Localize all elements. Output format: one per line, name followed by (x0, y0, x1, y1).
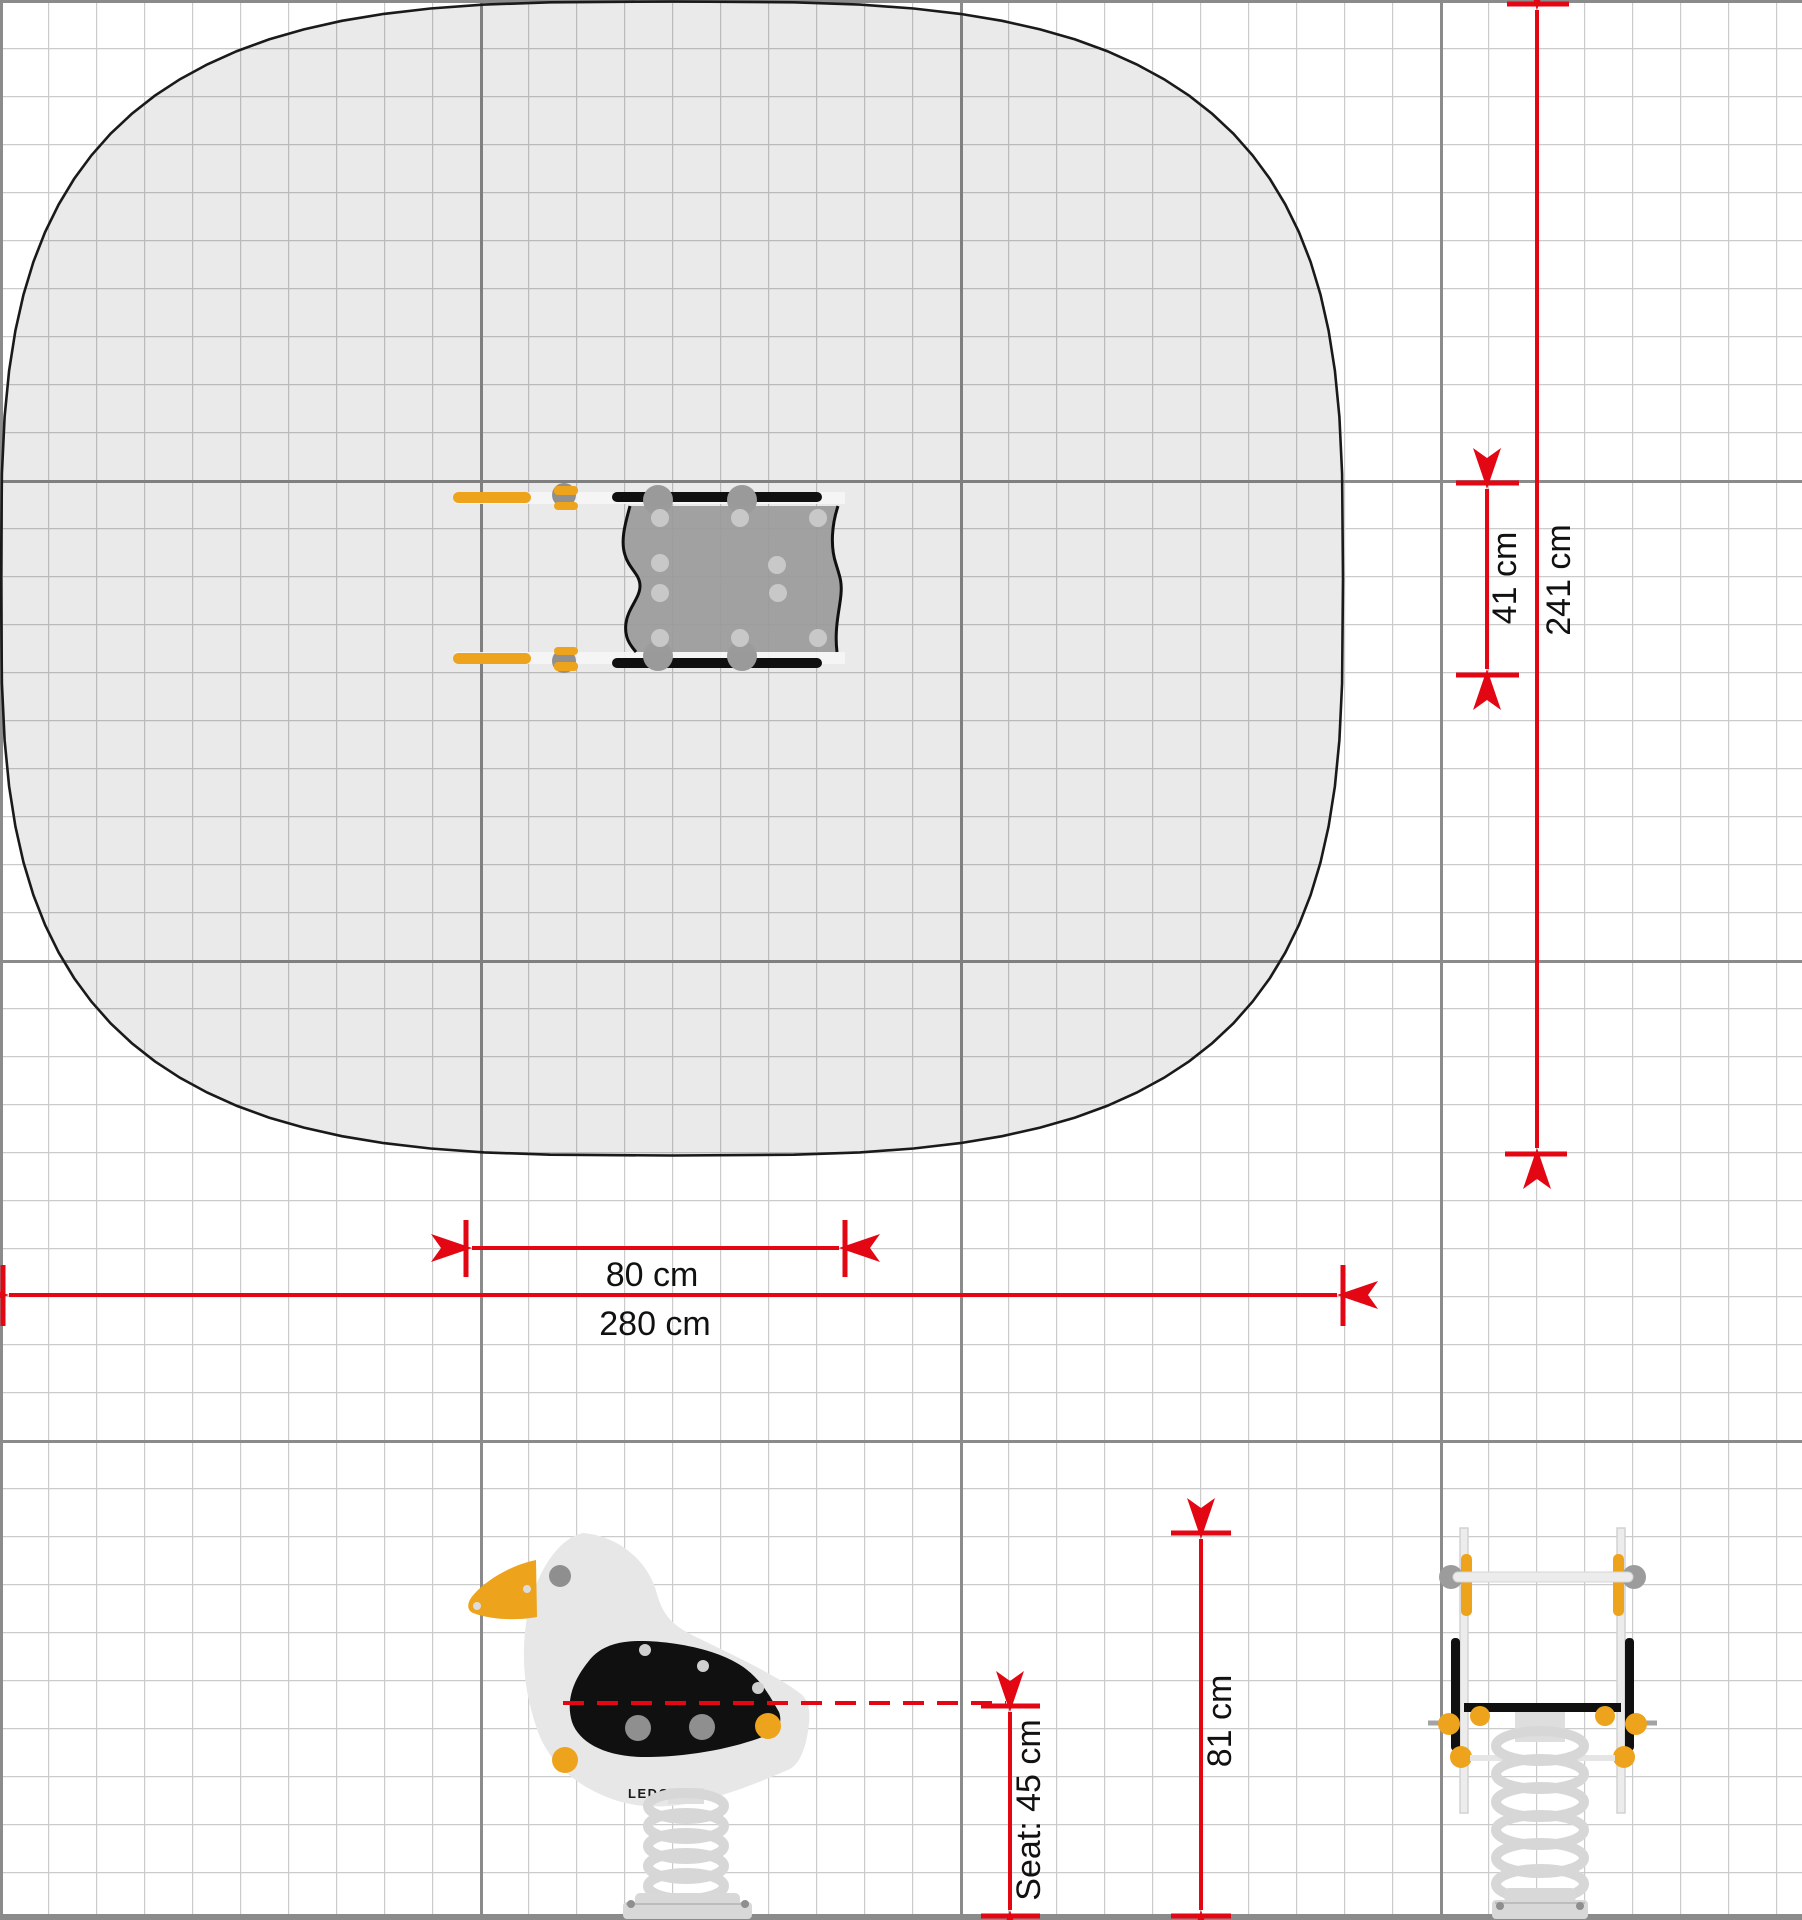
footrest-side-view (552, 1747, 578, 1773)
dimension-label-81cm: 81 cm (1201, 1675, 1239, 1768)
handlebar-front-view (1453, 1572, 1633, 1582)
footrest-side-view (755, 1713, 781, 1739)
beak-rivet (473, 1602, 481, 1610)
installation-drawing-page: LEDON (0, 0, 1802, 1920)
handlebar-grip-left (1461, 1554, 1472, 1616)
dimension-label-280cm: 280 cm (599, 1305, 711, 1343)
spring-front-view (1496, 1731, 1584, 1899)
dimension-label-seat45cm: Seat: 45 cm (1010, 1719, 1048, 1900)
dimension-label-41cm: 41 cm (1486, 532, 1524, 625)
dimension-label-80cm: 80 cm (606, 1256, 699, 1294)
installation-drawing: LEDON (0, 0, 1802, 1920)
beak-top-view-lower (453, 653, 531, 664)
dimension-label-241cm: 241 cm (1540, 524, 1578, 636)
base-front-view (1492, 1888, 1588, 1919)
beak-rivet (523, 1585, 531, 1593)
base-side-view (623, 1893, 752, 1919)
gull-eye (549, 1565, 571, 1587)
beak-top-view-upper (453, 492, 531, 503)
handlebar-grip-right (1613, 1554, 1624, 1616)
